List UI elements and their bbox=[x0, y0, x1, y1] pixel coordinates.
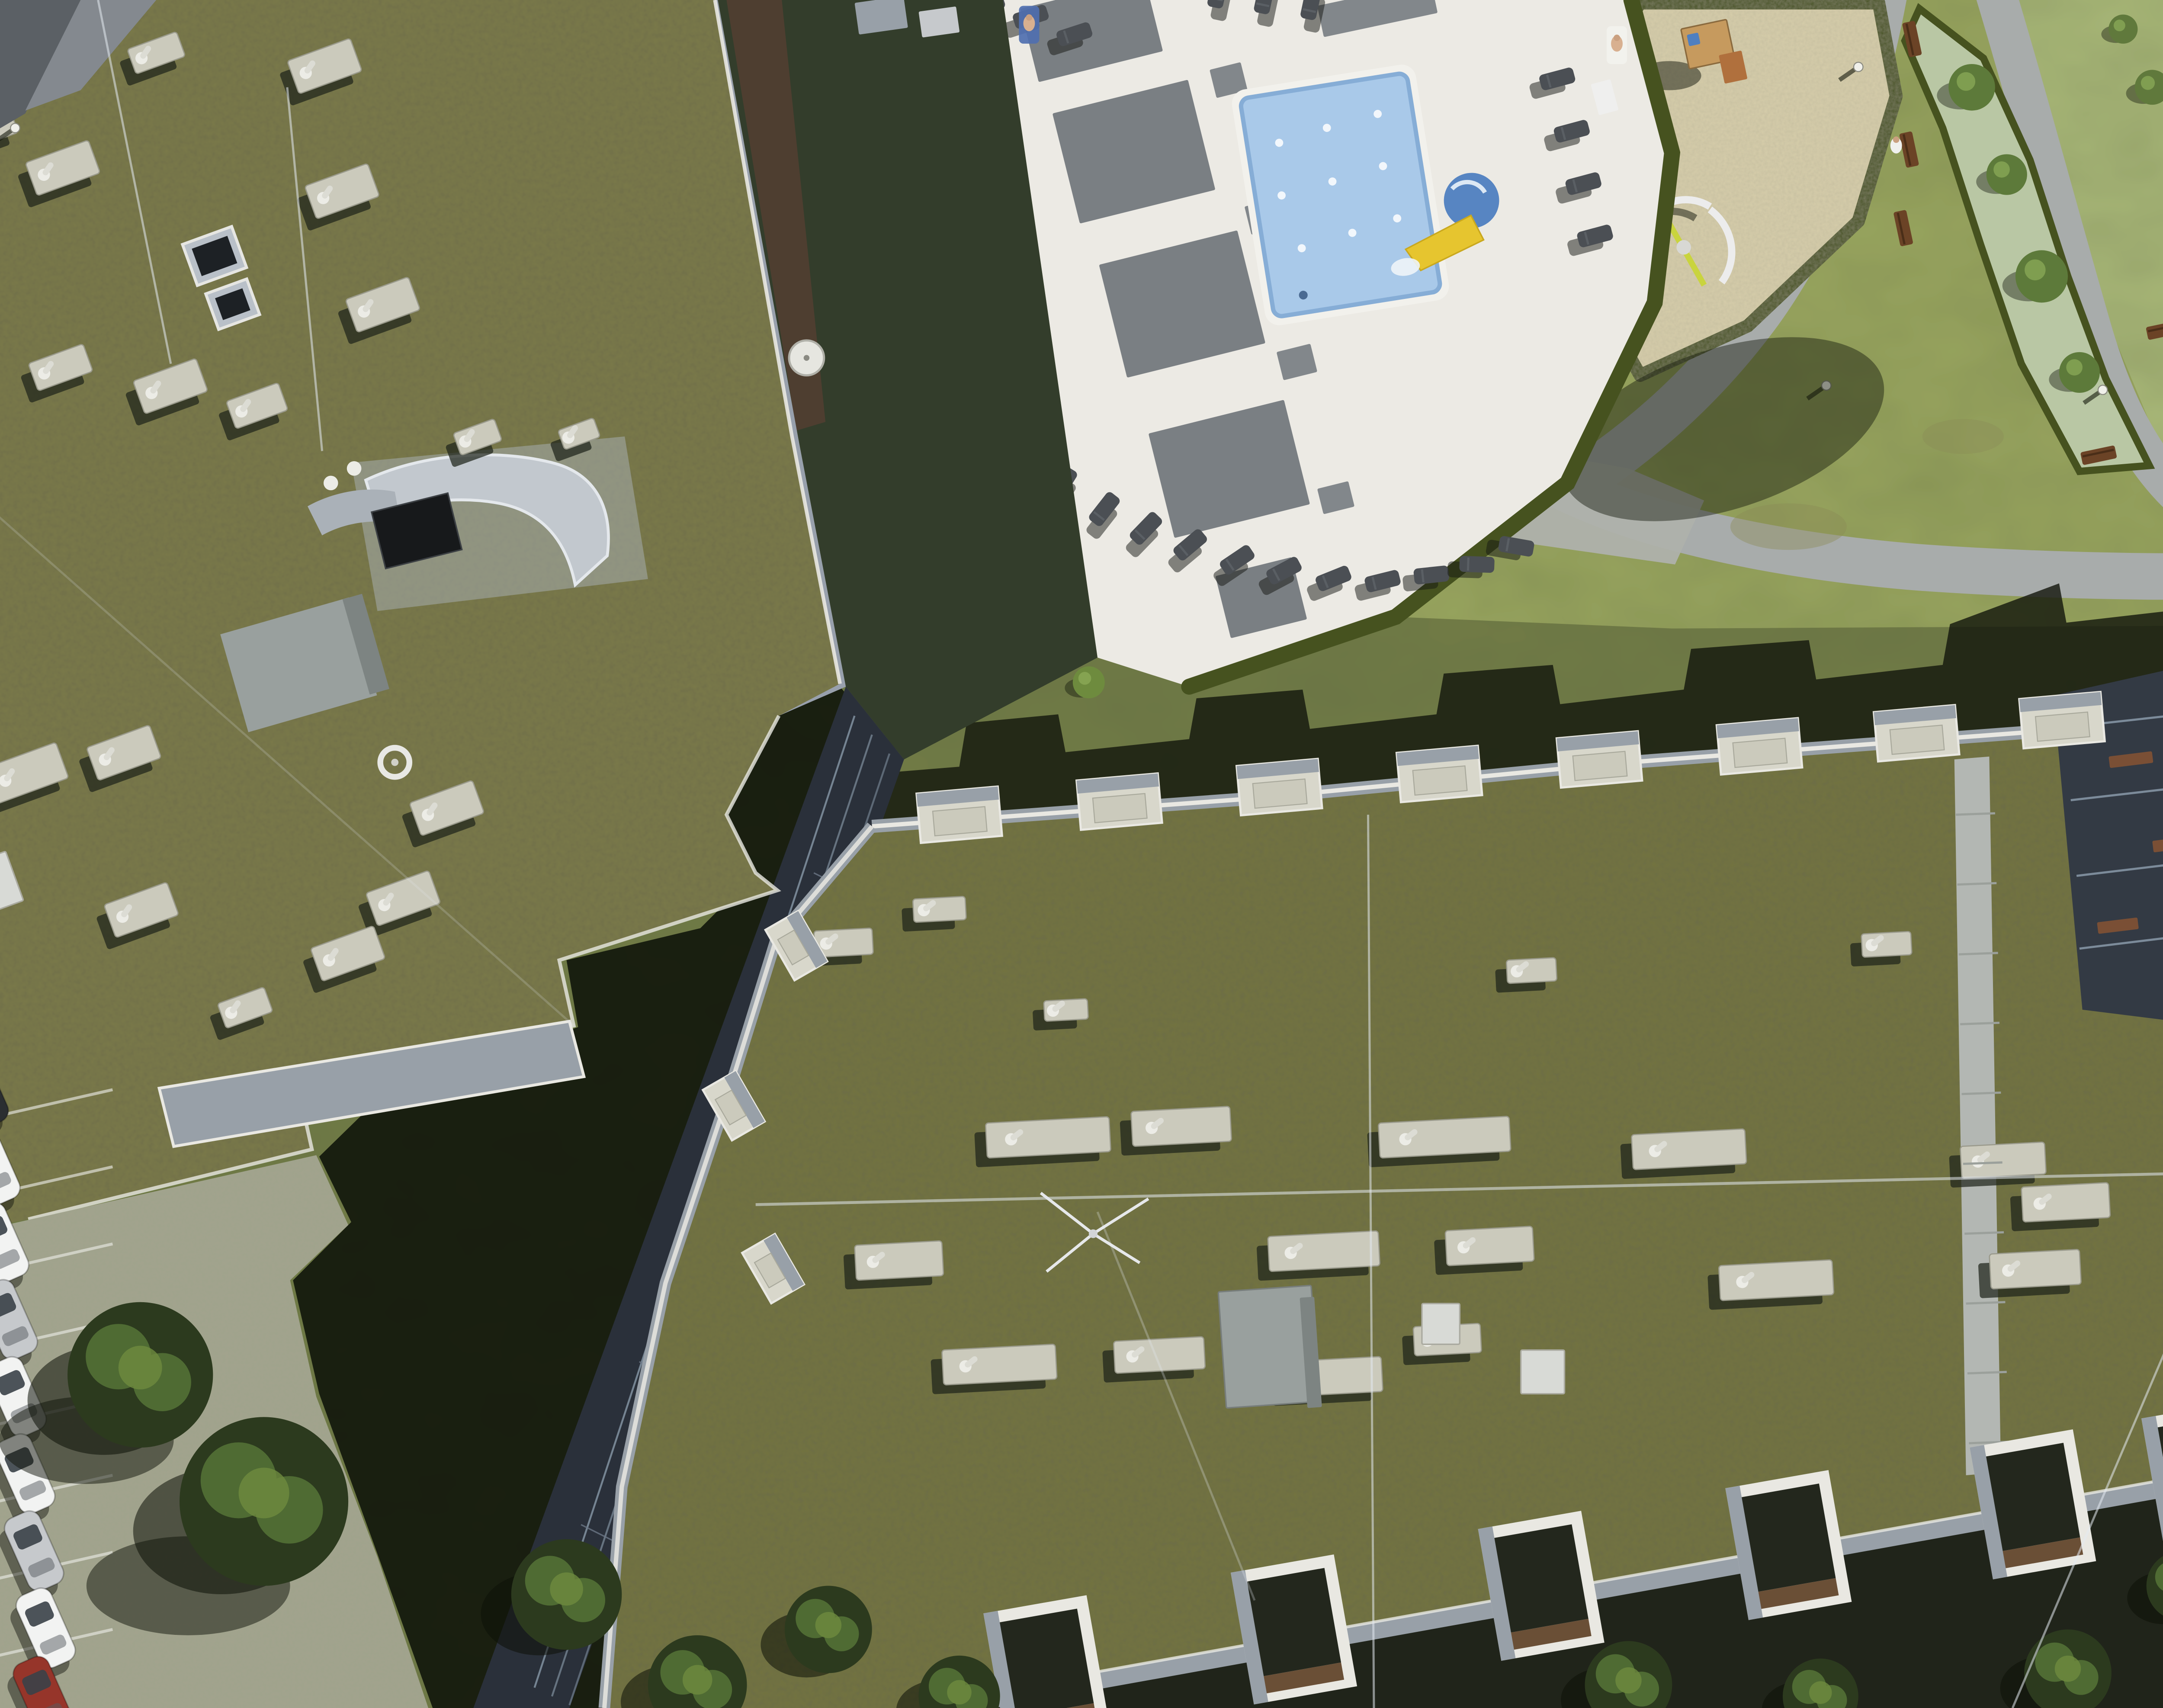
circle bbox=[1089, 1230, 1098, 1238]
vent bbox=[1119, 1106, 1232, 1156]
line bbox=[1962, 1093, 2001, 1094]
tooth bbox=[1077, 774, 1162, 830]
box bbox=[1521, 1350, 1565, 1394]
box bbox=[1422, 1303, 1460, 1344]
tooth bbox=[1874, 705, 1959, 761]
tooth bbox=[1237, 759, 1322, 815]
duct-pipe bbox=[324, 476, 338, 491]
tooth bbox=[1717, 718, 1802, 774]
aerial-photo-canvas bbox=[0, 0, 2163, 1708]
vent bbox=[1620, 1129, 1747, 1179]
vent bbox=[930, 1344, 1057, 1394]
box bbox=[918, 6, 960, 38]
line bbox=[1964, 1232, 2004, 1233]
vent bbox=[1102, 1337, 1206, 1383]
tooth bbox=[2019, 692, 2105, 748]
box bbox=[1687, 32, 1701, 46]
umbrella-pole bbox=[804, 355, 809, 361]
tooth bbox=[1396, 746, 1482, 802]
line bbox=[1956, 813, 1995, 815]
line bbox=[1963, 1162, 2003, 1164]
spinner-hub bbox=[1676, 240, 1691, 255]
vent bbox=[1707, 1260, 1834, 1310]
vent bbox=[1978, 1249, 2082, 1298]
line bbox=[1959, 953, 1998, 954]
blob bbox=[1730, 504, 1847, 550]
swimming-pool bbox=[1230, 63, 1451, 327]
duct-pipe bbox=[347, 461, 362, 476]
aerial-photo bbox=[0, 0, 2163, 1708]
line bbox=[1966, 1302, 2006, 1303]
vent bbox=[2010, 1183, 2111, 1232]
person bbox=[1607, 26, 1627, 64]
line bbox=[1967, 1372, 2007, 1373]
line bbox=[1960, 1023, 1999, 1024]
vent bbox=[1256, 1231, 1380, 1281]
tooth bbox=[1556, 731, 1642, 787]
vent bbox=[1434, 1226, 1535, 1275]
vent bbox=[843, 1241, 944, 1290]
line bbox=[1957, 883, 1996, 884]
person bbox=[1019, 6, 1039, 43]
pool-water bbox=[1240, 73, 1441, 318]
vent bbox=[1367, 1116, 1511, 1167]
tooth bbox=[917, 787, 1002, 843]
blob bbox=[1922, 419, 2004, 454]
vent bbox=[974, 1117, 1111, 1167]
